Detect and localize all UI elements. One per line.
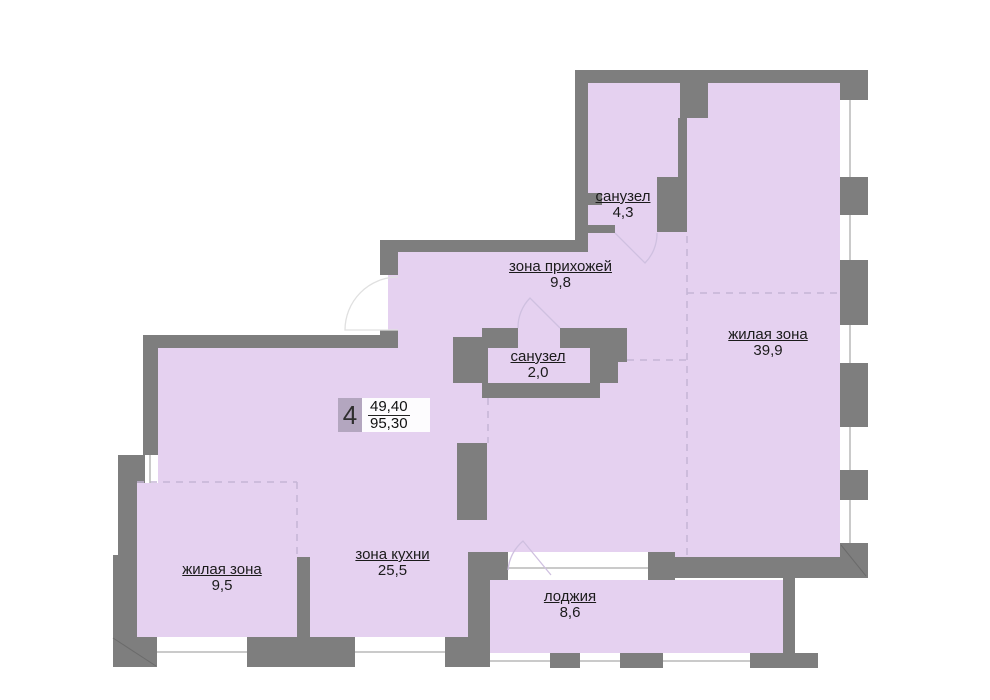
wall-segment: [113, 555, 137, 637]
area-upper: 49,40: [368, 399, 410, 416]
wall-segment: [560, 328, 590, 348]
apartment-badge-number: 4: [338, 398, 362, 432]
wall-segment: [648, 557, 868, 578]
floor-area-top-strip: [588, 232, 840, 252]
room-name: жилая зона: [148, 562, 296, 578]
wall-segment: [840, 260, 868, 325]
room-name: санузел: [478, 349, 598, 365]
wall-segment: [457, 443, 487, 520]
wall-segment: [468, 552, 490, 657]
floor-area-left-lower: [137, 483, 158, 637]
apartment-number: 4: [343, 400, 357, 431]
wall-segment: [840, 470, 868, 500]
room-area: 2,0: [478, 365, 598, 381]
room-name: зона кухни: [315, 547, 470, 563]
wall-segment: [388, 240, 588, 252]
room-area: 9,8: [478, 275, 643, 291]
room-area: 4,3: [568, 205, 678, 221]
wall-segment: [783, 578, 795, 653]
wall-segment: [840, 83, 868, 100]
area-lower: 95,30: [368, 416, 410, 432]
room-area: 39,9: [690, 343, 846, 359]
wall-segment: [297, 557, 310, 637]
floor-area-central: [388, 252, 840, 557]
room-label-kitchen: зона кухни 25,5: [315, 547, 470, 579]
room-label-living-large: жилая зона 39,9: [690, 327, 846, 359]
wall-segment: [588, 225, 615, 233]
wall-segment: [380, 240, 398, 275]
wall-segment: [750, 653, 818, 668]
room-label-hallway: зона прихожей 9,8: [478, 259, 643, 291]
room-name: зона прихожей: [478, 259, 643, 275]
apartment-badge-areas: 49,40 95,30: [362, 398, 430, 432]
room-area: 8,6: [495, 605, 645, 621]
wall-segment: [620, 653, 663, 668]
wall-segment: [482, 383, 600, 398]
wall-segment: [577, 70, 868, 83]
room-name: жилая зона: [690, 327, 846, 343]
wall-segment: [840, 363, 868, 427]
wall-segment: [143, 335, 158, 455]
room-name: санузел: [568, 189, 678, 205]
wall-segment: [118, 455, 145, 483]
room-label-bathroom-small: санузел 2,0: [478, 349, 598, 381]
wall-segment: [550, 653, 580, 668]
room-name: лоджия: [495, 589, 645, 605]
wall-segment: [143, 335, 387, 348]
room-label-loggia: лоджия 8,6: [495, 589, 645, 621]
wall-segment: [118, 483, 137, 555]
floor-plan: санузел 4,3 зона прихожей 9,8 жилая зона…: [0, 0, 990, 700]
wall-segment: [678, 118, 687, 177]
wall-segment: [680, 83, 708, 118]
window-opening: [508, 552, 648, 578]
room-area: 9,5: [148, 578, 296, 594]
wall-segment: [575, 70, 588, 252]
wall-segment: [648, 552, 675, 580]
room-label-living-small: жилая зона 9,5: [148, 562, 296, 594]
wall-segment: [113, 637, 157, 667]
room-area: 25,5: [315, 563, 470, 579]
wall-segment: [247, 637, 355, 667]
room-label-bathroom-top: санузел 4,3: [568, 189, 678, 221]
wall-segment: [840, 177, 868, 215]
